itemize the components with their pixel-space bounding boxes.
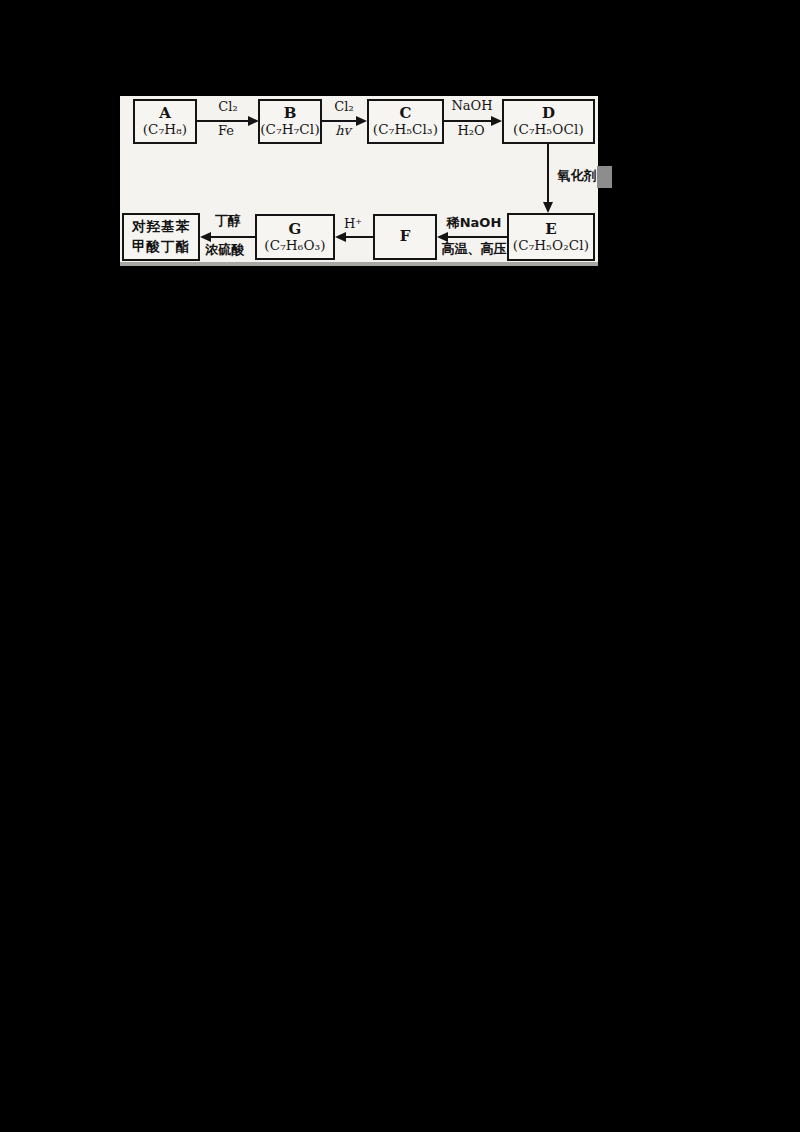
box-g-letter: G: [289, 221, 302, 238]
box-e: E (C₇H₅O₂Cl): [507, 213, 595, 261]
box-e-letter: E: [545, 221, 556, 238]
product-name-line1: 对羟基苯: [132, 217, 190, 237]
arrow-c-d-reagent: NaOH: [451, 99, 492, 113]
arrow-e-f-reagent: 稀NaOH: [447, 216, 502, 230]
reaction-flow-diagram: A (C₇H₈) B (C₇H₇Cl) C (C₇H₅Cl₃) D (C₇H₅O…: [120, 96, 598, 266]
product-name-line2: 甲酸丁酯: [132, 237, 190, 257]
arrow-a-b-condition: Fe: [218, 124, 234, 138]
box-product: 对羟基苯 甲酸丁酯: [122, 213, 200, 261]
scan-artifact-patch: [597, 166, 612, 188]
arrow-b-c-line: [321, 120, 357, 122]
arrow-b-c-head-icon: [356, 116, 367, 126]
arrow-b-c-reagent: Cl₂: [334, 100, 353, 114]
scan-fringe: [120, 262, 598, 266]
box-a-formula: (C₇H₈): [143, 122, 188, 138]
box-b-formula: (C₇H₇Cl): [260, 122, 320, 138]
box-a: A (C₇H₈): [133, 99, 197, 144]
arrow-f-g-reagent: H⁺: [344, 217, 362, 231]
box-a-letter: A: [159, 105, 171, 122]
arrow-g-product-line: [210, 236, 255, 238]
arrow-f-g-head-icon: [335, 232, 346, 242]
box-c: C (C₇H₅Cl₃): [367, 99, 444, 144]
arrow-d-e-reagent: 氧化剂: [558, 169, 597, 183]
arrow-g-product-head-icon: [200, 232, 211, 242]
arrow-e-f-condition: 高温、高压: [442, 242, 507, 256]
box-f: F: [373, 214, 437, 260]
arrow-g-product-reagent: 丁醇: [215, 214, 241, 228]
box-b: B (C₇H₇Cl): [258, 99, 322, 144]
arrow-a-b-line: [197, 120, 250, 122]
box-b-letter: B: [284, 105, 297, 122]
arrow-c-d-head-icon: [491, 116, 502, 126]
arrow-e-f-line: [447, 236, 507, 238]
box-g: G (C₇H₆O₃): [255, 214, 335, 260]
box-g-formula: (C₇H₆O₃): [264, 238, 326, 254]
arrow-g-product-condition: 浓硫酸: [206, 243, 245, 257]
box-c-formula: (C₇H₅Cl₃): [373, 122, 438, 138]
box-d-formula: (C₇H₅OCl): [513, 122, 584, 138]
box-d: D (C₇H₅OCl): [502, 99, 595, 144]
box-c-letter: C: [400, 105, 412, 122]
arrow-a-b-reagent: Cl₂: [218, 100, 237, 114]
arrow-d-e-head-icon: [543, 202, 553, 213]
arrow-a-b-head-icon: [248, 116, 259, 126]
arrow-f-g-line: [345, 236, 373, 238]
box-f-letter: F: [400, 228, 411, 245]
box-e-formula: (C₇H₅O₂Cl): [513, 238, 590, 254]
arrow-d-e-line: [547, 144, 549, 203]
arrow-c-d-line: [444, 120, 492, 122]
arrow-c-d-condition: H₂O: [457, 124, 484, 138]
box-d-letter: D: [542, 105, 555, 122]
arrow-b-c-condition: hv: [335, 124, 351, 138]
